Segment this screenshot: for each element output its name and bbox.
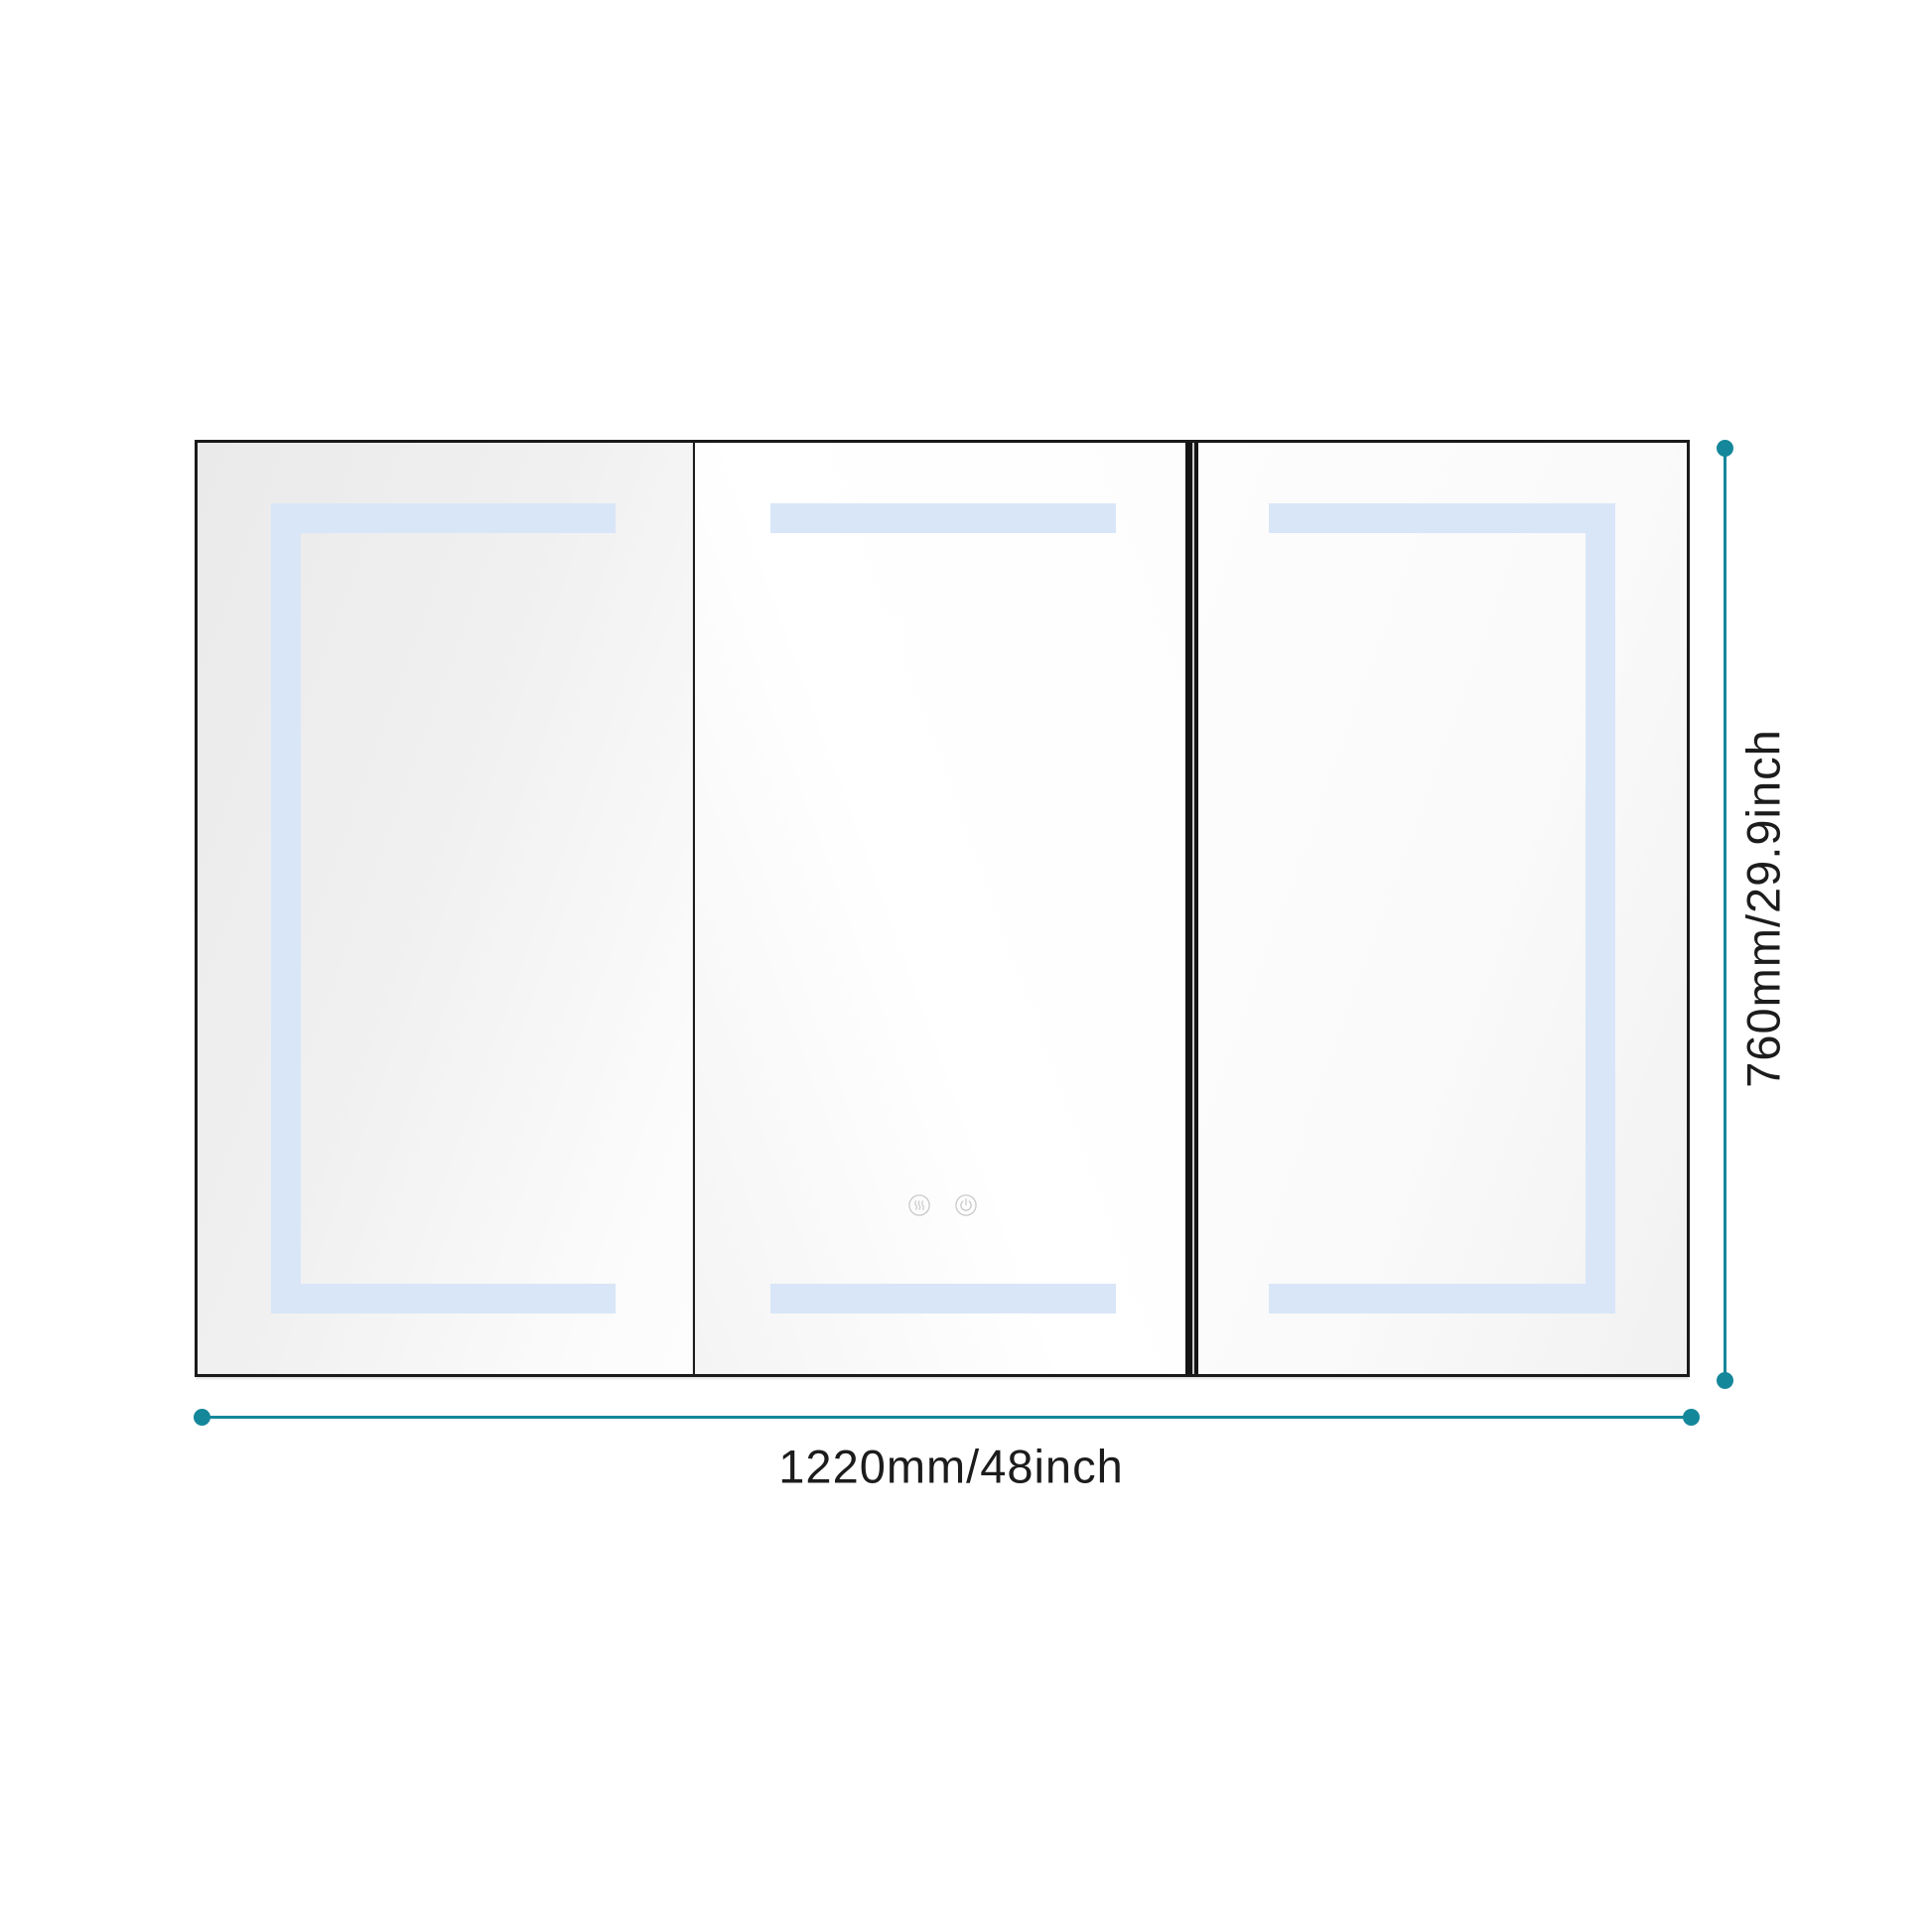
width-dimension-line: [202, 1416, 1691, 1419]
height-dimension-label: 760mm/29.9inch: [1736, 729, 1791, 1087]
dimension-endpoint-dot: [1683, 1409, 1700, 1426]
led-strip-bottom: [271, 1284, 616, 1313]
led-strip-bottom: [1269, 1284, 1615, 1313]
touch-controls: [908, 1194, 977, 1216]
door-divider-right: [1185, 443, 1198, 1374]
diagram-canvas: 760mm/29.9inch 1220mm/48inch: [0, 0, 1932, 1932]
cabinet-door-right: [1198, 443, 1687, 1374]
cabinet-door-center: [695, 443, 1185, 1374]
cabinet-door-left: [198, 443, 692, 1374]
led-strip-top: [770, 503, 1116, 533]
led-strip-right: [1586, 503, 1615, 1313]
led-strip-bottom: [770, 1284, 1116, 1313]
led-strip-top: [1269, 503, 1615, 533]
dimension-endpoint-dot: [1717, 440, 1733, 457]
dimension-endpoint-dot: [1717, 1372, 1733, 1389]
led-strip-top: [271, 503, 616, 533]
height-dimension-line: [1724, 448, 1726, 1380]
width-dimension-label: 1220mm/48inch: [778, 1440, 1123, 1494]
led-strip-left: [271, 503, 301, 1313]
mirror-cabinet: [195, 440, 1690, 1377]
dimension-endpoint-dot: [194, 1409, 210, 1426]
defog-icon: [908, 1194, 930, 1216]
power-icon: [955, 1194, 977, 1216]
